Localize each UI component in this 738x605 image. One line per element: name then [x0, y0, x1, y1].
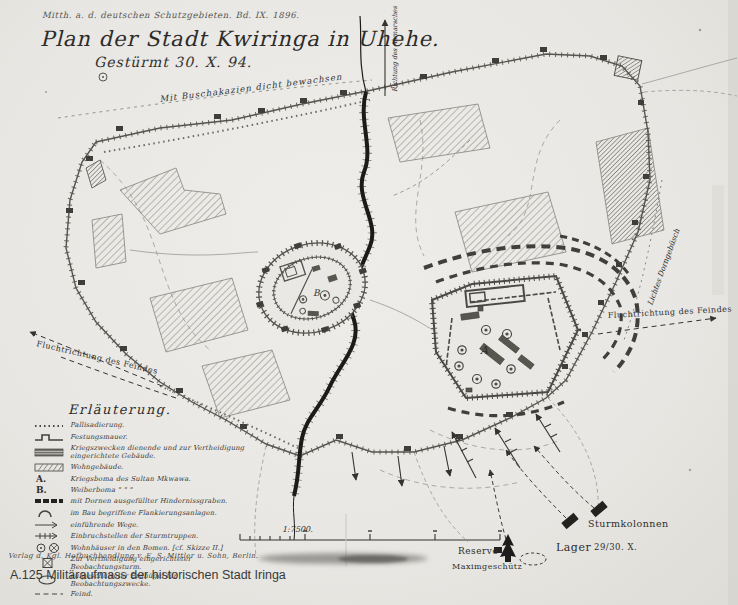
- legend-row: im Bau begriffene Flankierungsanlagen.: [34, 507, 252, 519]
- thorn-ditch-icon: [34, 496, 66, 506]
- residential-building-icon: [34, 461, 66, 473]
- residential-block: [120, 168, 226, 234]
- residential-block: [92, 214, 126, 268]
- palisade-line-icon: [34, 420, 66, 430]
- residential-block: [150, 278, 248, 352]
- breach-points-icon: [34, 531, 66, 541]
- legend-row: Kriegszwecken dienende und zur Vertheidi…: [34, 444, 252, 460]
- perimeter-wall: [66, 54, 650, 456]
- legend-row: Wohngebäude.: [34, 461, 252, 473]
- label-enemy-flight-right: Fluchtrichtung des Feindes: [608, 305, 733, 320]
- letter-a-icon: A.: [34, 474, 66, 484]
- map-header: Mitth. a. d. deutschen Schutzgebieten. B…: [34, 10, 454, 70]
- legend-row: B. Weiberboma " " ": [34, 485, 252, 495]
- residential-block: [455, 192, 566, 272]
- legend-row: Feind.: [34, 589, 252, 599]
- legend-row: einführende Wege.: [34, 520, 252, 530]
- legend-row: Festungsmauer.: [34, 431, 252, 443]
- residential-blocks: [92, 104, 664, 418]
- enemy-flight-lines: [30, 318, 716, 398]
- page-subtitle: Gestürmt 30. X. 94.: [94, 54, 454, 70]
- military-building-icon: [34, 446, 66, 458]
- corner-bastion: [86, 160, 106, 188]
- storm-column-icon: [590, 501, 607, 517]
- label-scale: 1:7500.: [282, 525, 313, 534]
- label-storm-columns: Sturmkolonnen: [588, 518, 669, 529]
- legend-heading: Erläuterung.: [68, 402, 252, 417]
- fort-b: B: [242, 226, 380, 350]
- enemy-line-icon: [34, 589, 66, 599]
- page-title: Plan der Stadt Kwiringa in Uhehe.: [40, 27, 454, 51]
- legend-row: Einbruchstellen der Sturmtruppen.: [34, 531, 252, 541]
- fort-a-letter: A: [479, 344, 489, 357]
- fortress-wall-icon: [34, 431, 66, 443]
- residential-block-dense: [596, 128, 664, 244]
- residential-block: [388, 104, 490, 162]
- flanking-works-icon: [34, 507, 66, 519]
- breach-arrows: [352, 414, 560, 486]
- letter-b-icon: B.: [34, 485, 66, 495]
- entry-roads-icon: [34, 520, 66, 530]
- corner-bastion: [614, 56, 642, 81]
- label-vegetation-top: Mit Buschakazien dicht bewachsen: [159, 72, 343, 104]
- fort-a: A: [432, 276, 578, 398]
- legend-row: mit Dornen ausgefüllter Hindernissgraben…: [34, 496, 252, 506]
- publisher-line: Verlag d. Kgl. Hofbuchhandlung v. E. S. …: [8, 552, 738, 560]
- figure-caption: A.125 Militäraufmass der historischen St…: [10, 568, 738, 582]
- scanned-map-page: B A: [0, 0, 738, 605]
- legend-row: A. Kriegsboma des Sultan Mkwawa.: [34, 474, 252, 484]
- label-camp-date: 29/30. X.: [594, 542, 637, 552]
- legend-row: Pallisadierung.: [34, 420, 252, 430]
- assault-routes: [490, 446, 594, 546]
- ink-smudge: [338, 555, 408, 563]
- source-note: Mitth. a. d. deutschen Schutzgebieten. B…: [42, 10, 454, 20]
- map-footer: Verlag d. Kgl. Hofbuchhandlung v. E. S. …: [0, 552, 738, 582]
